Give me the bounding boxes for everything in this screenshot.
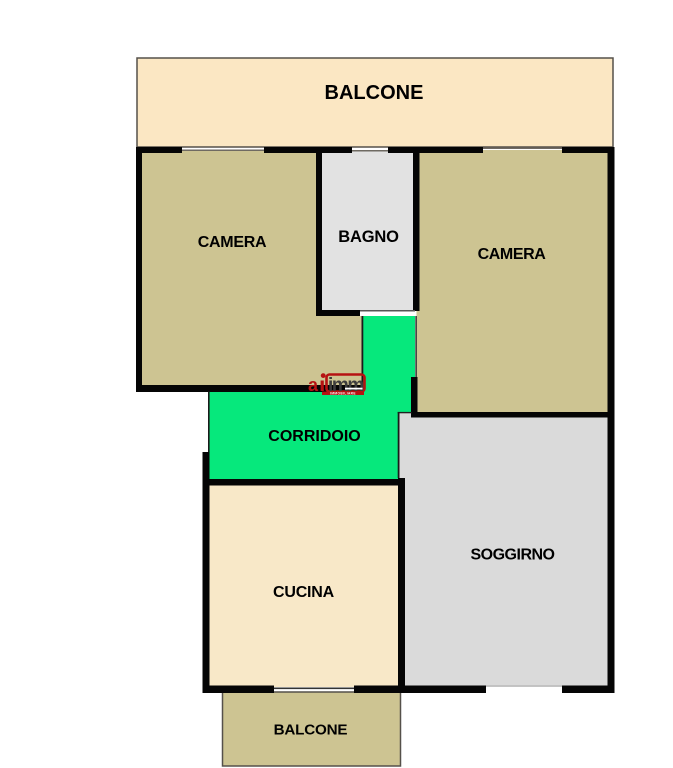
svg-text:a: a	[308, 375, 319, 395]
svg-text:IMMOBILIARE: IMMOBILIARE	[330, 392, 356, 396]
svg-text:CAMERA: CAMERA	[198, 234, 267, 251]
svg-text:BALCONE: BALCONE	[274, 722, 348, 739]
svg-text:CORRIDOIO: CORRIDOIO	[268, 428, 360, 445]
svg-text:BAGNO: BAGNO	[338, 228, 399, 246]
svg-text:CUCINA: CUCINA	[273, 584, 335, 601]
svg-text:CAMERA: CAMERA	[478, 246, 547, 263]
svg-text:SOGGIRNO: SOGGIRNO	[470, 547, 554, 564]
svg-text:BALCONE: BALCONE	[325, 82, 424, 104]
